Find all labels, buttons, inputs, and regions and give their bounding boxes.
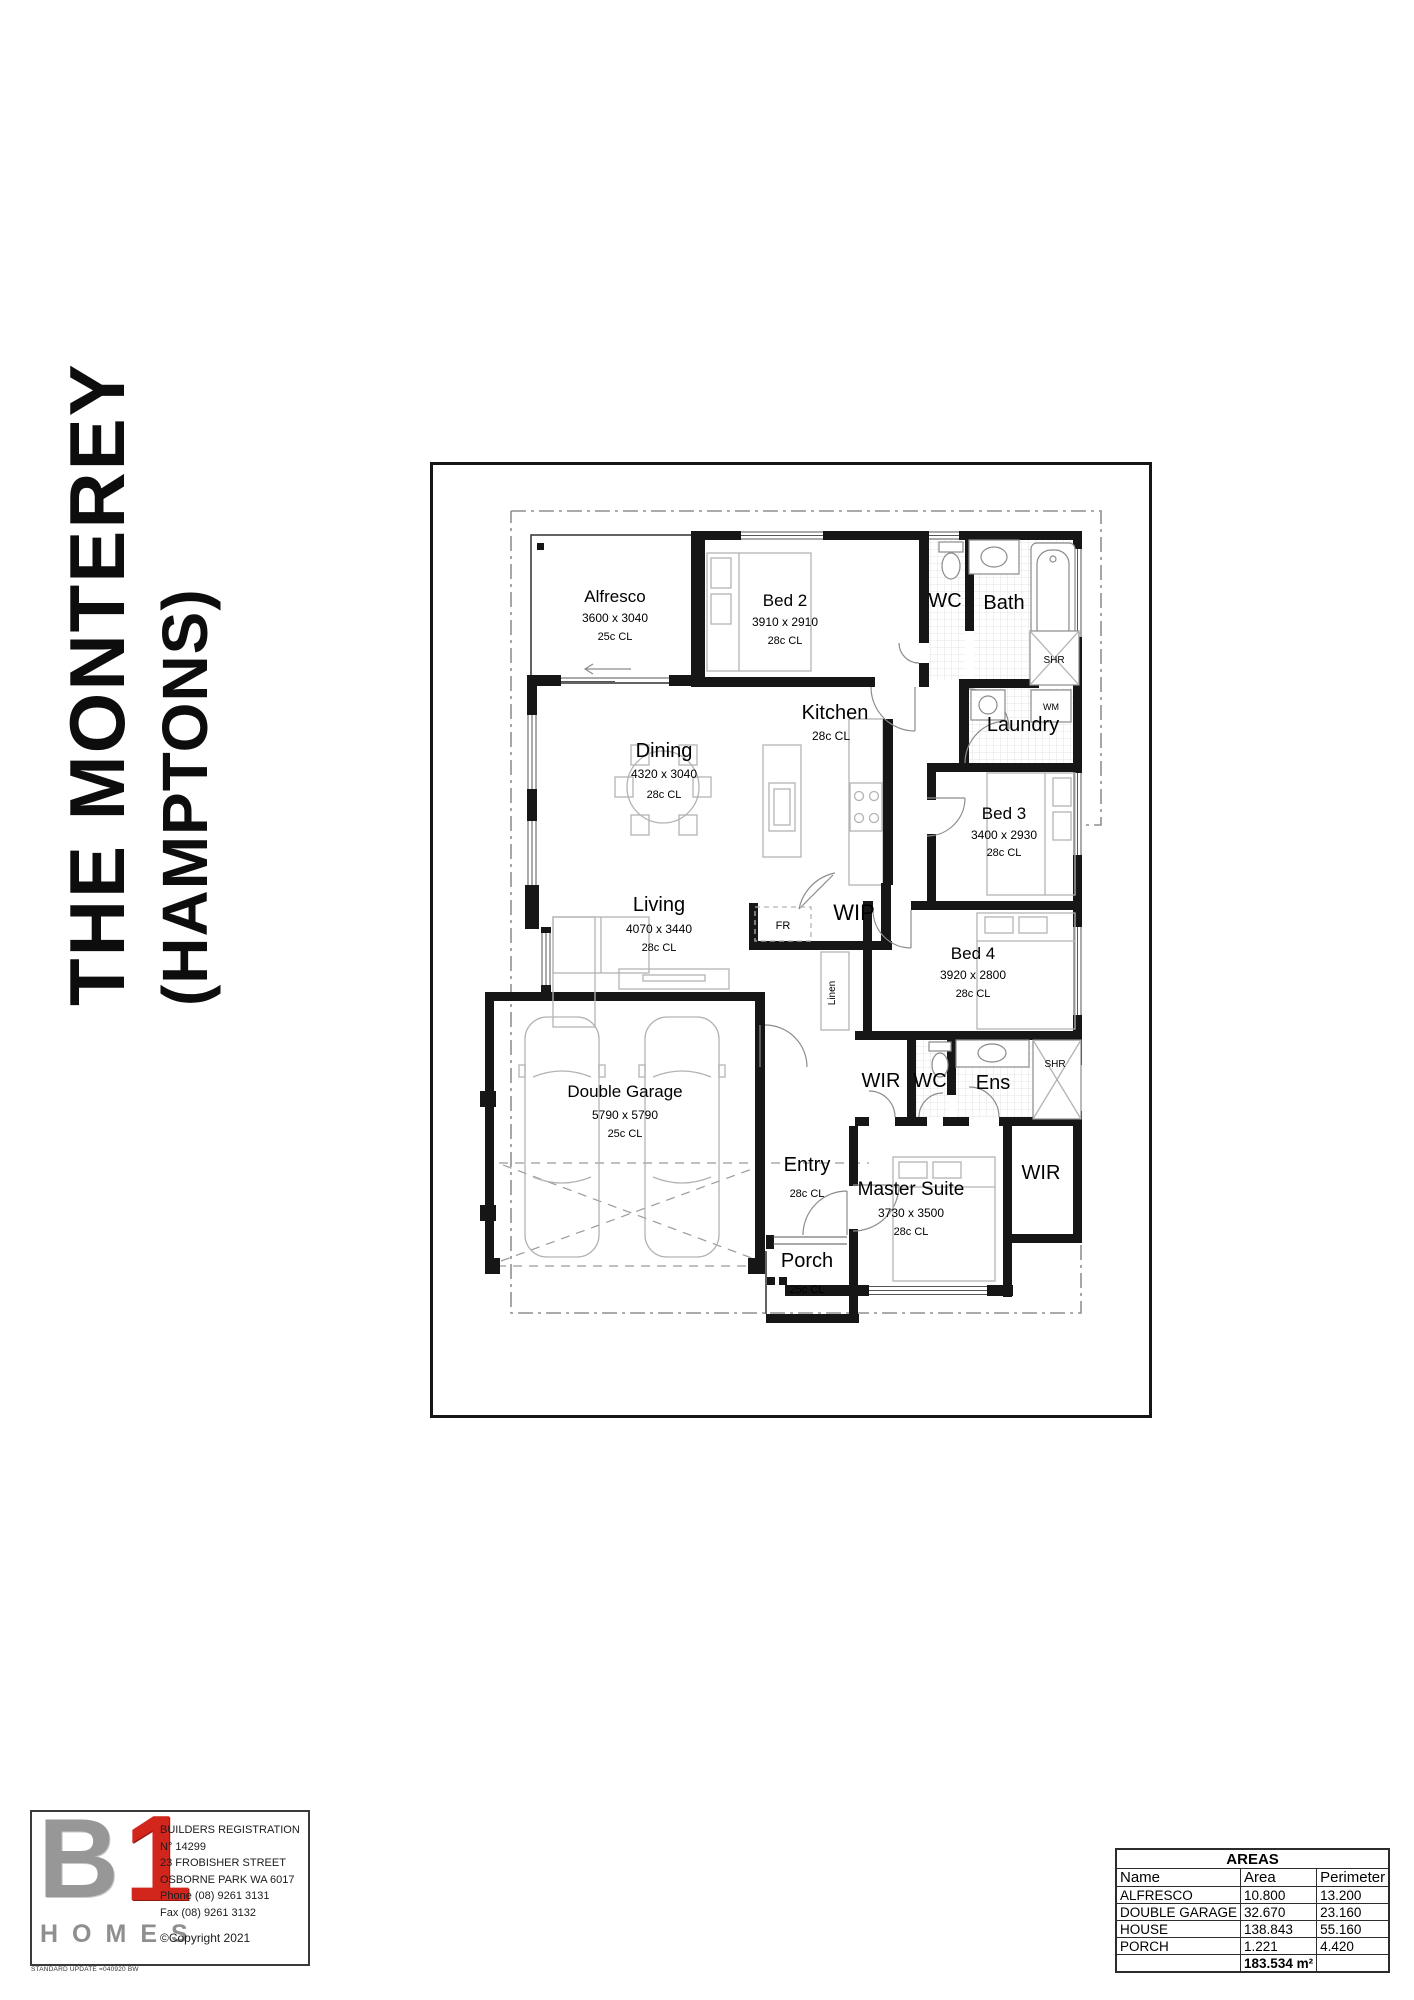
- window-bath-north: [929, 532, 959, 539]
- cell-empty: [1116, 1955, 1241, 1973]
- wall-segment: [927, 772, 936, 800]
- cell-area: 138.843: [1241, 1921, 1317, 1938]
- areas-row-garage: DOUBLE GARAGE 32.670 23.160: [1116, 1904, 1389, 1921]
- cell-perimeter: 55.160: [1317, 1921, 1390, 1938]
- cooktop: [850, 783, 882, 831]
- cell-perimeter: 23.160: [1317, 1904, 1390, 1921]
- cell-total-area: 183.534 m²: [1241, 1955, 1317, 1973]
- wall-segment: [911, 901, 1082, 910]
- room-label-shr1: SHR: [1043, 655, 1064, 666]
- room-label-shr2: SHR: [1044, 1059, 1065, 1070]
- wall-segment: [485, 1258, 500, 1274]
- window-master-south: [869, 1287, 987, 1295]
- standard-update-note: STANDARD UPDATE =040920 BW: [31, 1966, 139, 1973]
- wall-segment: [959, 763, 1082, 772]
- wall-segment: [959, 531, 1082, 540]
- car-2: [639, 1017, 725, 1257]
- room-label-porch: Porch: [781, 1250, 833, 1272]
- room-label-entry: Entry: [784, 1154, 831, 1176]
- room-label-wc1: WC: [928, 590, 961, 612]
- registration-line: Phone (08) 9261 3131: [160, 1888, 306, 1905]
- wall-segment: [527, 675, 537, 715]
- plan-title: THE MONTEREY: [52, 362, 143, 1006]
- wall-segment: [959, 679, 969, 772]
- car-1: [519, 1017, 605, 1257]
- room-ceiling-living: 28c CL: [642, 942, 677, 954]
- room-ceiling-bed4: 28c CL: [956, 988, 991, 1000]
- porch-step: [779, 1277, 787, 1285]
- copyright-line: ©Copyright 2021: [160, 1929, 306, 1947]
- logo-letter-b: B: [38, 1794, 119, 1923]
- registration-details: BUILDERS REGISTRATION N° 14299 23 FROBIS…: [160, 1822, 306, 1947]
- porch-step: [767, 1277, 775, 1285]
- areas-title: AREAS: [1116, 1849, 1389, 1869]
- areas-header-area: Area: [1241, 1869, 1317, 1887]
- room-label-garage: Double Garage: [567, 1082, 682, 1101]
- room-label-wc2: WC: [913, 1070, 946, 1092]
- room-ceiling-bed2: 28c CL: [768, 635, 803, 647]
- wall-segment: [855, 1117, 869, 1126]
- window-dining-west: [528, 715, 536, 789]
- alfresco-sliding-door: [561, 664, 669, 682]
- window-living-west-lower: [541, 933, 551, 985]
- cell-name: ALFRESCO: [1116, 1887, 1241, 1904]
- cell-area: 1.221: [1241, 1938, 1317, 1955]
- room-ceiling-kitchen: 28c CL: [812, 729, 850, 743]
- cell-name: PORCH: [1116, 1938, 1241, 1955]
- room-label-bath: Bath: [983, 592, 1024, 614]
- room-label-alfresco: Alfresco: [584, 587, 645, 606]
- room-dims-bed4: 3920 x 2800: [940, 968, 1006, 982]
- alfresco-outline: [531, 535, 699, 683]
- plan-frame: Alfresco 3600 x 3040 25c CL Bed 2 3910 x…: [430, 462, 1152, 1418]
- cell-perimeter: 13.200: [1317, 1887, 1390, 1904]
- wall-segment: [748, 1258, 765, 1274]
- room-label-kitchen: Kitchen: [802, 702, 869, 724]
- wall-segment: [849, 1229, 858, 1323]
- room-label-wir2: WIR: [1022, 1162, 1061, 1184]
- room-label-laundry: Laundry: [987, 714, 1059, 736]
- wall-segment: [919, 531, 929, 643]
- cell-name: HOUSE: [1116, 1921, 1241, 1938]
- plan-subtitle: (HAMPTONS): [148, 588, 222, 1006]
- room-dims-dining: 4320 x 3040: [631, 767, 697, 781]
- cell-perimeter: 4.420: [1317, 1938, 1390, 1955]
- wall-segment: [525, 885, 539, 929]
- room-label-dining: Dining: [636, 740, 693, 762]
- room-label-master: Master Suite: [858, 1179, 965, 1200]
- alfresco-pier: [537, 543, 544, 550]
- window-bed4-east: [1072, 927, 1083, 1015]
- room-label-wip: WIP: [833, 900, 875, 925]
- registration-line: BUILDERS REGISTRATION: [160, 1822, 306, 1839]
- wall-segment: [927, 834, 936, 910]
- wall-segment: [749, 941, 892, 950]
- wall-segment: [987, 1285, 1013, 1296]
- areas-header-name: Name: [1116, 1869, 1241, 1887]
- areas-row-house: HOUSE 138.843 55.160: [1116, 1921, 1389, 1938]
- registration-line: OSBORNE PARK WA 6017: [160, 1872, 306, 1889]
- room-ceiling-dining: 28c CL: [647, 789, 682, 801]
- areas-header-row: Name Area Perimeter: [1116, 1869, 1389, 1887]
- wall-segment: [1003, 1234, 1082, 1243]
- room-ceiling-bed3: 28c CL: [987, 847, 1022, 859]
- areas-total-row: 183.534 m²: [1116, 1955, 1389, 1973]
- ens-vanity: [956, 1040, 1029, 1067]
- window-bed3-east: [1072, 773, 1083, 855]
- room-label-fr: FR: [776, 920, 791, 932]
- window-bed2-north: [741, 532, 823, 539]
- registration-line: Fax (08) 9261 3132: [160, 1905, 306, 1922]
- bath-vanity: [969, 540, 1019, 574]
- wall-segment: [823, 531, 929, 540]
- wall-segment: [967, 679, 1039, 688]
- areas-header-perimeter: Perimeter: [1317, 1869, 1390, 1887]
- door-wc1: [899, 643, 919, 663]
- areas-row-alfresco: ALFRESCO 10.800 13.200: [1116, 1887, 1389, 1904]
- room-ceiling-garage: 25c CL: [608, 1128, 643, 1140]
- wall-segment: [527, 789, 537, 821]
- wall-segment: [863, 910, 872, 1033]
- wall-segment: [485, 992, 765, 1001]
- room-label-wm: WM: [1043, 702, 1059, 712]
- floor-plan: Alfresco 3600 x 3040 25c CL Bed 2 3910 x…: [433, 465, 1149, 1415]
- wall-segment: [691, 677, 875, 687]
- bed2-furniture: [707, 553, 811, 671]
- wall-segment: [927, 763, 965, 772]
- garage-pier: [480, 1205, 496, 1221]
- room-label-bed3: Bed 3: [982, 804, 1026, 823]
- room-dims-living: 4070 x 3440: [626, 922, 692, 936]
- front-door-sill: [773, 1237, 847, 1244]
- wall-segment: [485, 992, 494, 1274]
- wall-segment: [883, 719, 893, 885]
- room-label-bed2: Bed 2: [763, 591, 807, 610]
- wall-segment: [1003, 1126, 1012, 1236]
- wall-segment: [855, 1031, 1082, 1040]
- door-garage: [760, 1025, 807, 1067]
- areas-table: AREAS Name Area Perimeter ALFRESCO 10.80…: [1115, 1848, 1390, 1973]
- kitchen-island: [763, 745, 801, 857]
- wall-segment: [849, 1126, 858, 1186]
- tv-unit: [619, 969, 729, 989]
- door-wir1: [869, 1091, 895, 1117]
- areas-row-porch: PORCH 1.221 4.420: [1116, 1938, 1389, 1955]
- registration-line: 23 FROBISHER STREET: [160, 1855, 306, 1872]
- room-dims-garage: 5790 x 5790: [592, 1108, 658, 1122]
- cell-area: 10.800: [1241, 1887, 1317, 1904]
- garage-pier: [480, 1091, 496, 1107]
- room-label-wir1: WIR: [862, 1070, 901, 1092]
- cell-name: DOUBLE GARAGE: [1116, 1904, 1241, 1921]
- builder-logo-box: B 1 HOMES BUILDERS REGISTRATION N° 14299…: [30, 1810, 310, 1966]
- room-ceiling-entry: 28c CL: [790, 1188, 825, 1200]
- registration-line: N° 14299: [160, 1839, 306, 1856]
- room-dims-alfresco: 3600 x 3040: [582, 611, 648, 625]
- wall-segment: [691, 531, 705, 685]
- wall-segment: [749, 903, 758, 950]
- door-bed3: [927, 798, 965, 836]
- cell-area: 32.670: [1241, 1904, 1317, 1921]
- room-label-bed4: Bed 4: [951, 944, 995, 963]
- room-ceiling-alfresco: 25c CL: [598, 631, 633, 643]
- room-label-ens: Ens: [976, 1072, 1010, 1094]
- areas-title-row: AREAS: [1116, 1849, 1389, 1869]
- room-dims-bed3: 3400 x 2930: [971, 828, 1037, 842]
- door-wip: [799, 873, 835, 909]
- wall-segment: [943, 1117, 969, 1126]
- room-dims-master: 3730 x 3500: [878, 1206, 944, 1220]
- room-label-living: Living: [633, 894, 685, 916]
- cell-empty: [1317, 1955, 1390, 1973]
- wall-segment: [766, 1314, 859, 1323]
- shower-ens: [1033, 1040, 1081, 1119]
- room-ceiling-porch: 25c CL: [790, 1284, 825, 1296]
- room-label-linen: Linen: [827, 981, 838, 1005]
- wall-segment: [766, 1235, 774, 1249]
- kitchen-bench: [849, 719, 883, 885]
- room-ceiling-master: 28c CL: [894, 1226, 929, 1238]
- wall-segment: [919, 663, 929, 687]
- room-dims-bed2: 3910 x 2910: [752, 615, 818, 629]
- window-living-west: [528, 821, 536, 885]
- page: { "title": { "line1": "THE MONTEREY", "l…: [0, 0, 1414, 2000]
